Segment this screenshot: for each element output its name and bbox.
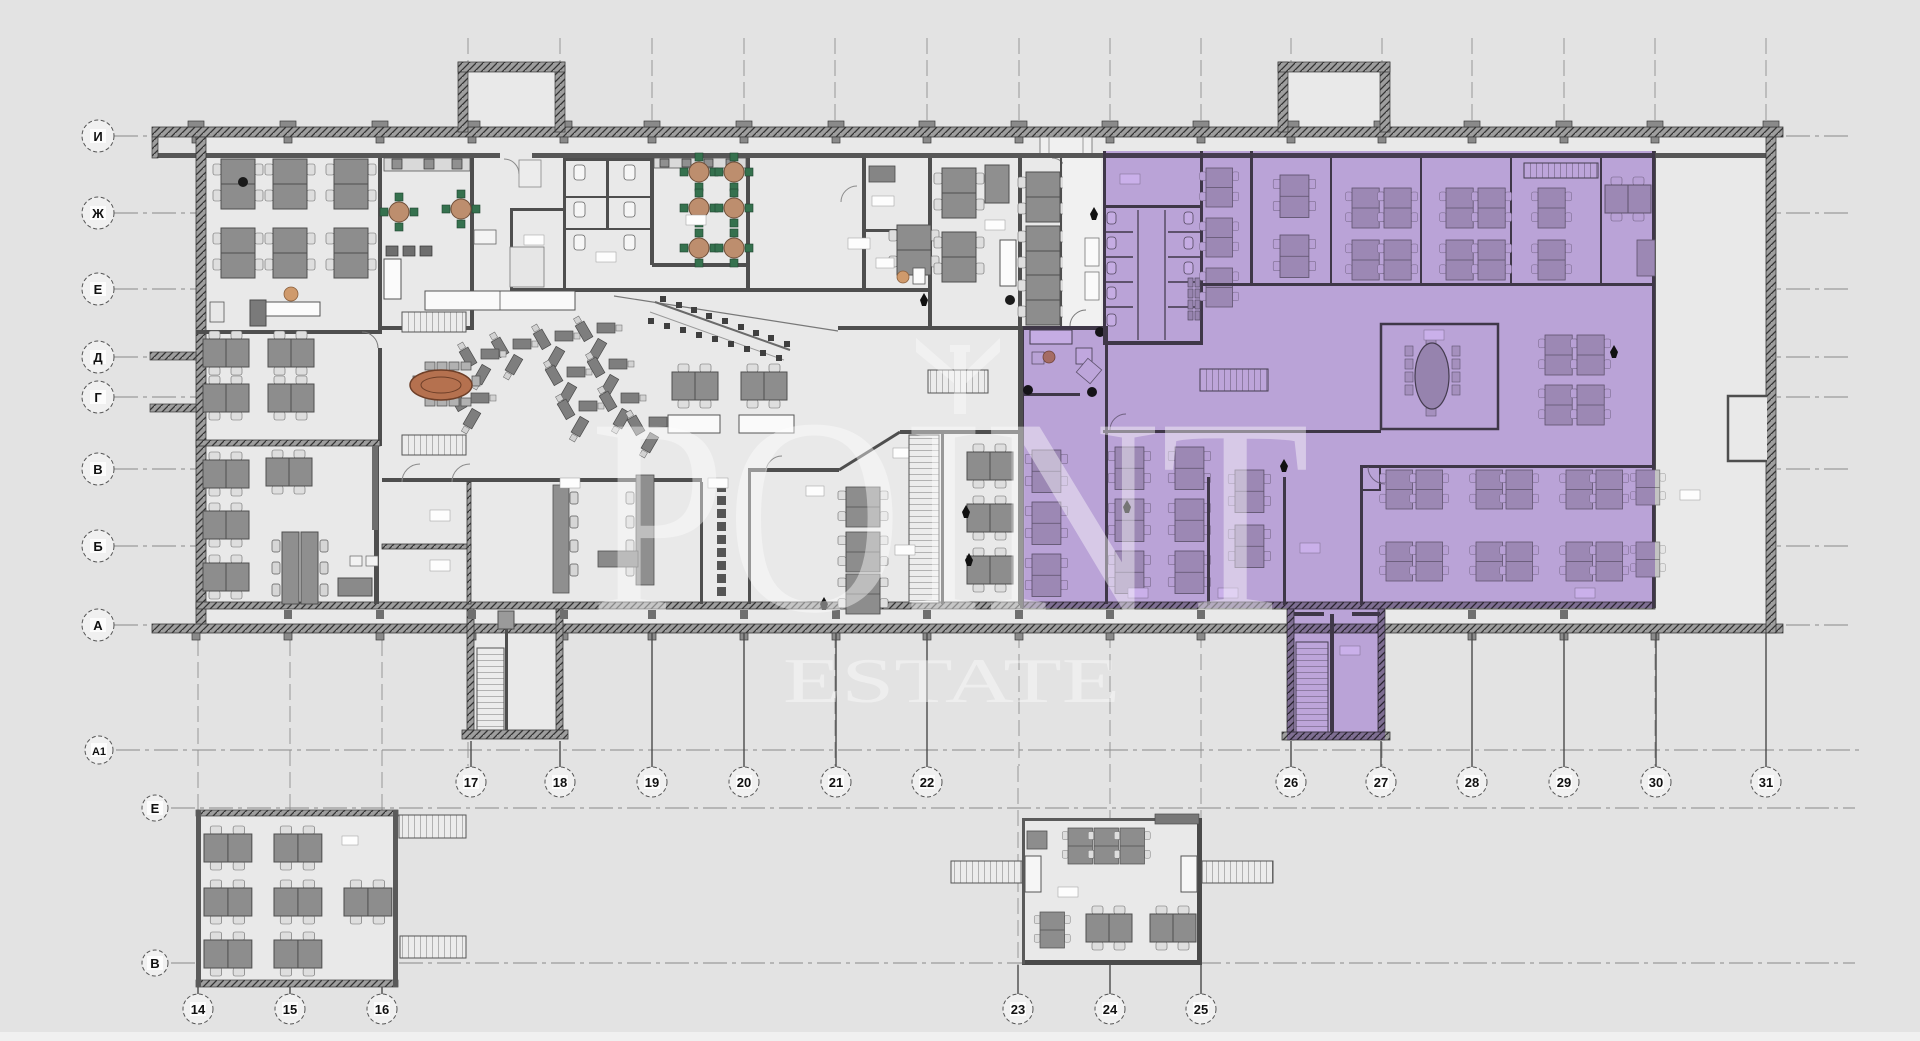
svg-text:26: 26 (1284, 775, 1298, 790)
svg-text:25: 25 (1194, 1002, 1208, 1017)
svg-text:22: 22 (920, 775, 934, 790)
svg-text:POINT: POINT (590, 360, 1310, 671)
svg-text:18: 18 (553, 775, 567, 790)
svg-text:Б: Б (93, 539, 102, 554)
svg-text:14: 14 (191, 1002, 206, 1017)
svg-text:Е: Е (94, 282, 103, 297)
svg-text:29: 29 (1557, 775, 1571, 790)
svg-text:16: 16 (375, 1002, 389, 1017)
svg-text:27: 27 (1374, 775, 1388, 790)
svg-text:И: И (93, 129, 102, 144)
svg-text:15: 15 (283, 1002, 297, 1017)
svg-text:А: А (93, 618, 103, 633)
svg-text:В: В (93, 462, 102, 477)
svg-text:21: 21 (829, 775, 843, 790)
svg-text:Д: Д (93, 350, 103, 365)
svg-text:23: 23 (1011, 1002, 1025, 1017)
svg-text:А1: А1 (92, 746, 106, 758)
svg-text:19: 19 (645, 775, 659, 790)
svg-text:24: 24 (1103, 1002, 1118, 1017)
svg-text:ESTATE: ESTATE (783, 645, 1120, 716)
svg-text:17: 17 (464, 775, 478, 790)
svg-text:30: 30 (1649, 775, 1663, 790)
svg-text:Г: Г (94, 390, 102, 405)
svg-text:31: 31 (1759, 775, 1773, 790)
svg-text:Ж: Ж (91, 206, 104, 221)
svg-text:Е: Е (151, 801, 160, 816)
svg-text:28: 28 (1465, 775, 1479, 790)
svg-text:В: В (150, 956, 159, 971)
svg-text:20: 20 (737, 775, 751, 790)
